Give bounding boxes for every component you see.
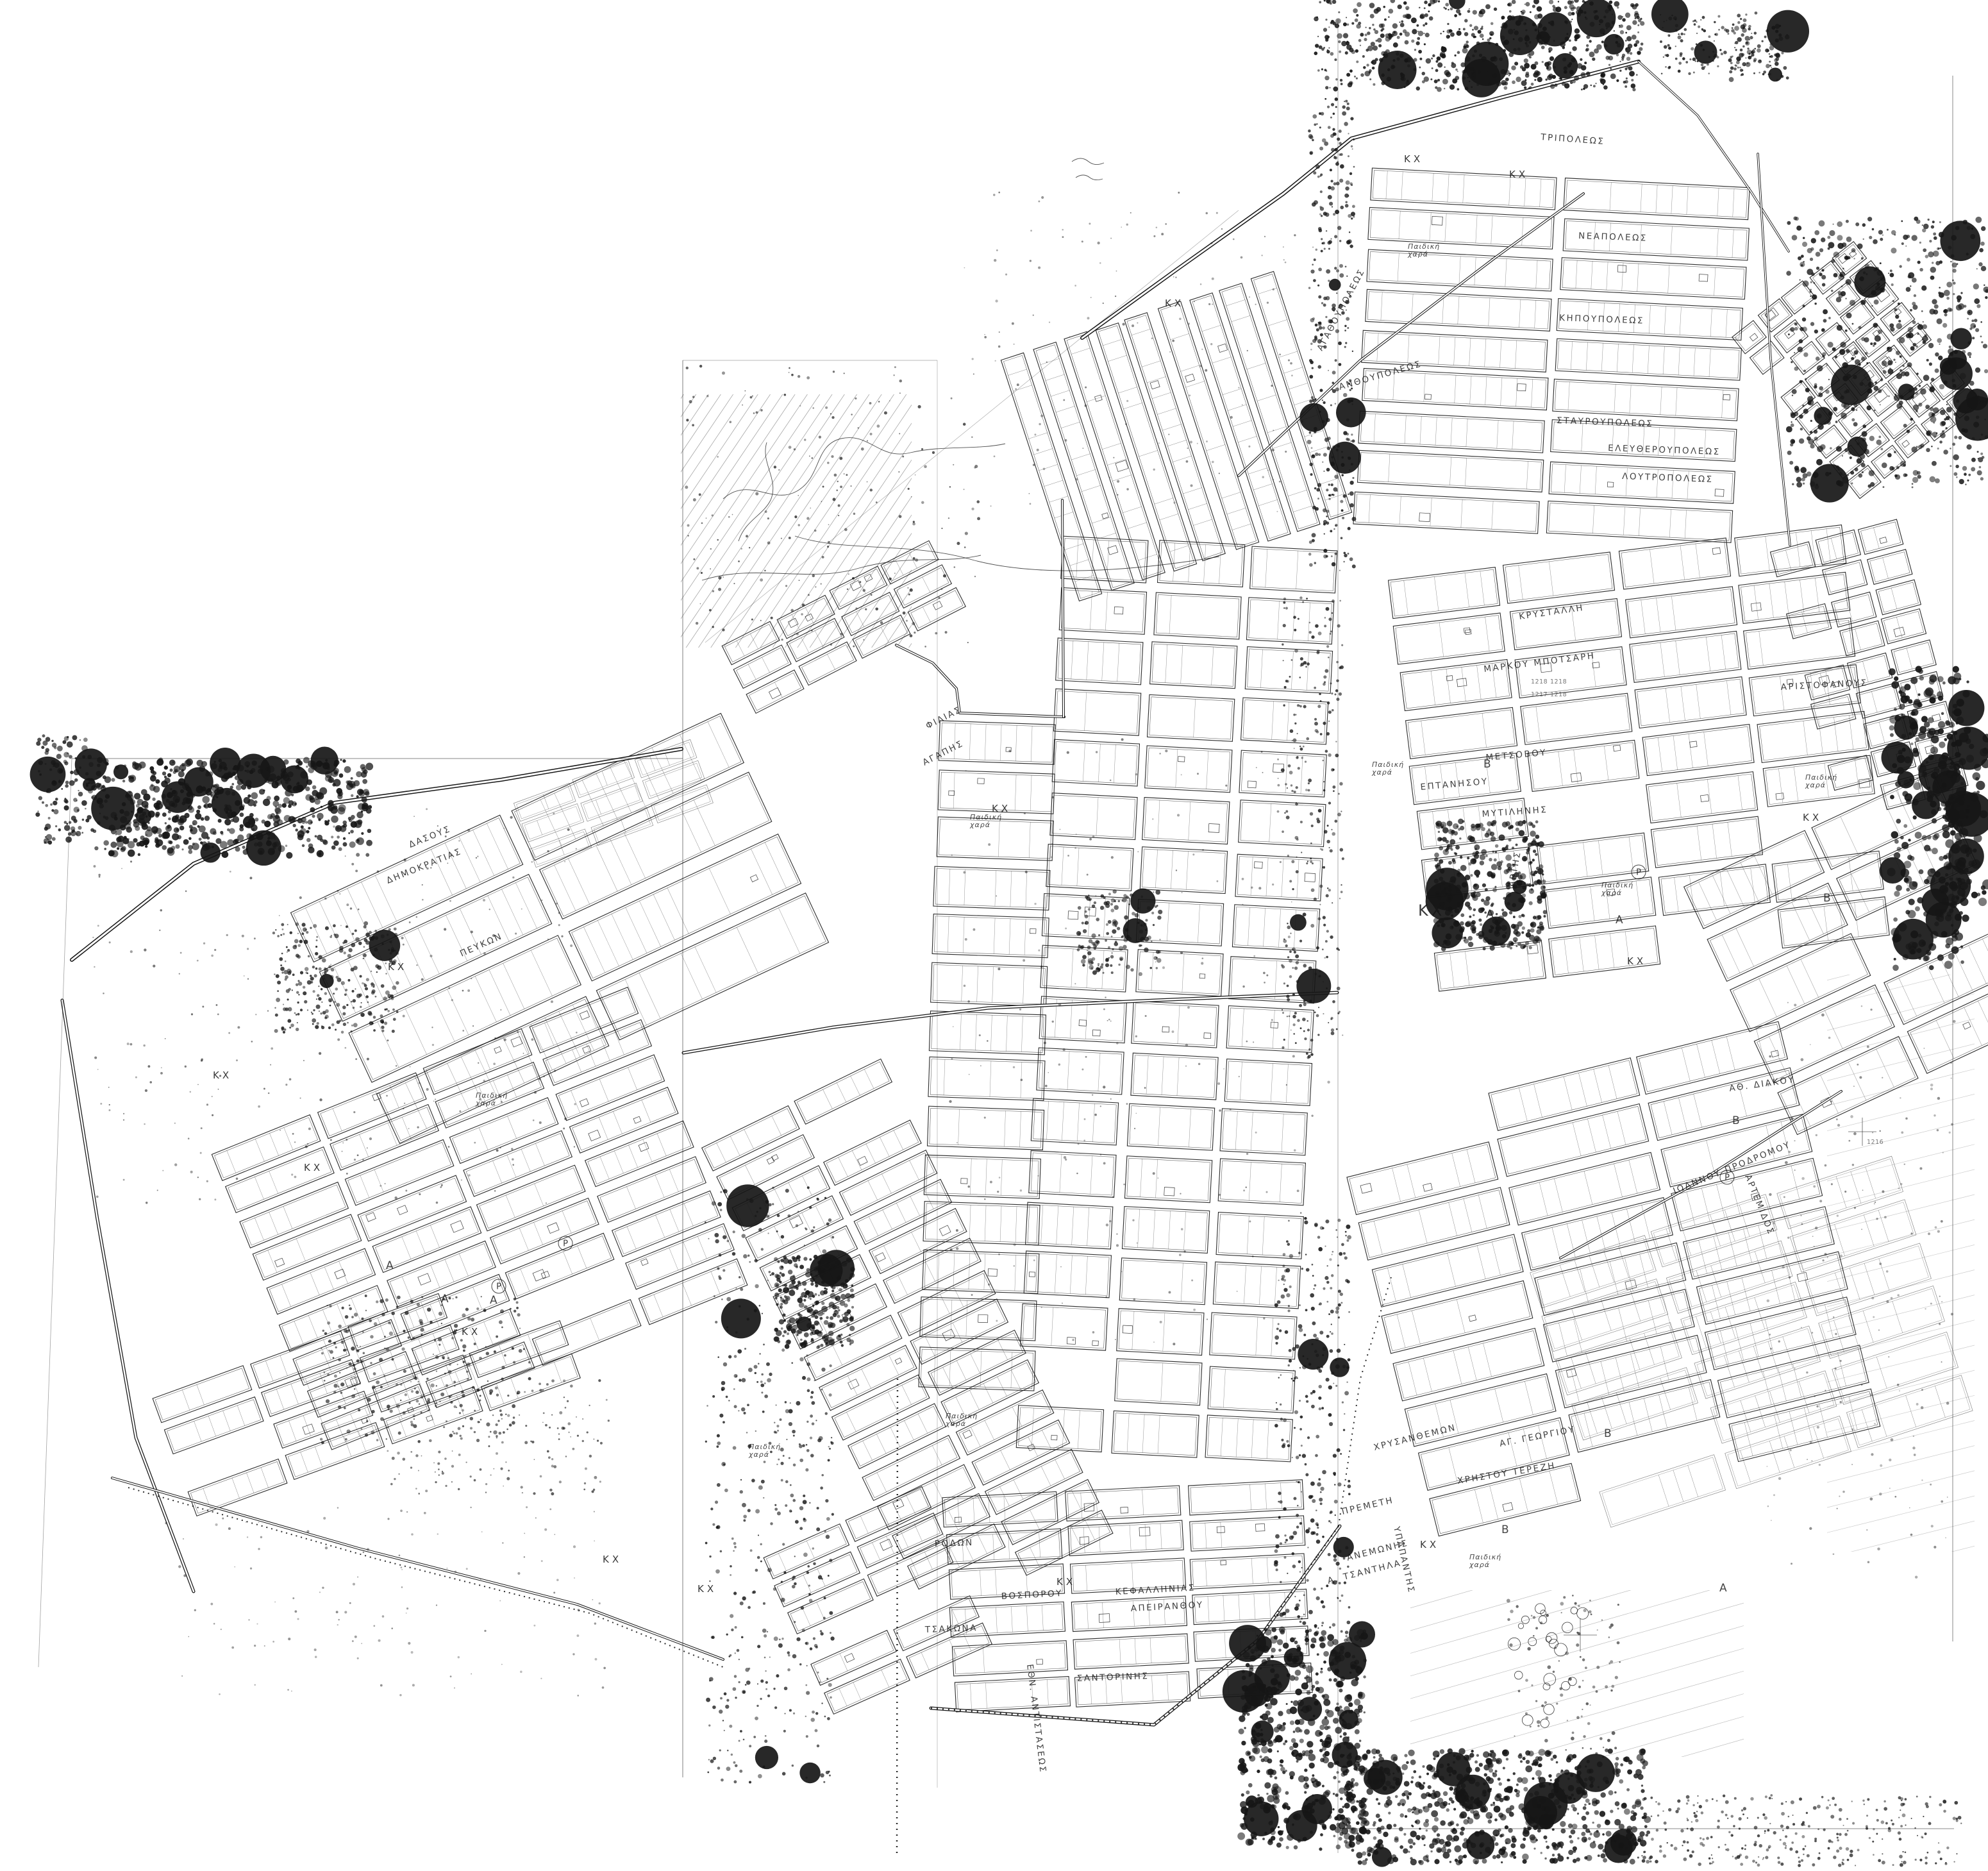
- open-space-label: ΚΧ: [1404, 153, 1423, 165]
- open-space-label: ΚΧ: [1803, 812, 1822, 823]
- pencil-number-label: 1216: [1867, 1139, 1884, 1146]
- street-label: ΤΣΑΚΩΝΑ: [924, 1623, 978, 1635]
- pencil-number-label: 1218: [1531, 678, 1548, 685]
- block-letter-label: Β: [1732, 1114, 1740, 1127]
- open-space-label: ΚΧ: [1057, 1576, 1076, 1588]
- open-space-label: ΚΧ: [697, 1583, 717, 1595]
- block-letter-label: Α: [386, 1259, 394, 1272]
- pencil-number-label: 1217: [1531, 691, 1548, 698]
- map-scan-page: ΤΡΙΠΟΛΕΩΣΝΕΑΠΟΛΕΩΣΚΗΠΟΥΠΟΛΕΩΣΣΤΑΥΡΟΥΠΟΛΕ…: [0, 0, 1988, 1871]
- block-letter-label: Α: [1719, 1582, 1727, 1595]
- block-letter-label: Α: [490, 1294, 497, 1307]
- open-space-label: ΚΧ: [1165, 298, 1184, 309]
- block-letter-label: Α: [441, 1293, 449, 1305]
- open-space-label: ΚΧ: [213, 1070, 232, 1081]
- street-label: ΡΟΔΩΝ: [935, 1538, 974, 1549]
- block-letter-label: Β: [1604, 1427, 1612, 1440]
- pencil-number-label: 1218: [1550, 691, 1567, 698]
- open-space-label: ΚΧ: [1420, 1539, 1439, 1550]
- block-letter-label: Β: [1501, 1523, 1509, 1536]
- block-letter-label: Β: [1483, 758, 1491, 771]
- open-space-label: ΚΧ: [388, 961, 407, 973]
- block-letter-label: Α: [1616, 914, 1623, 927]
- open-space-label: ΚΧ: [603, 1554, 622, 1565]
- paper-background: [0, 0, 1988, 1871]
- scanned-cadastral-map: ΤΡΙΠΟΛΕΩΣΝΕΑΠΟΛΕΩΣΚΗΠΟΥΠΟΛΕΩΣΣΤΑΥΡΟΥΠΟΛΕ…: [0, 0, 1988, 1871]
- open-space-label: ΚΧ: [304, 1162, 323, 1173]
- pencil-number-label: 1218: [1550, 678, 1567, 685]
- block-letter-label: Α: [1486, 908, 1494, 921]
- open-space-label: ΚΧ: [462, 1326, 481, 1338]
- block-letter-label: Β: [1823, 892, 1831, 905]
- open-space-label: ΚΧ: [1418, 902, 1445, 919]
- open-space-label: ΚΧ: [1627, 955, 1646, 967]
- open-space-label: ΚΧ: [1509, 169, 1528, 180]
